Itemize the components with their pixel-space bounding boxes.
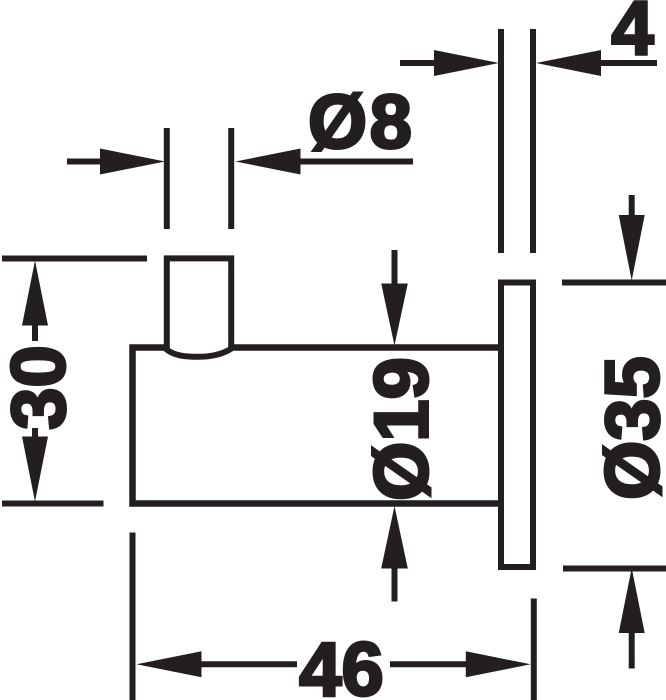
svg-text:Ø8: Ø8: [308, 80, 414, 165]
svg-text:Ø19: Ø19: [360, 357, 445, 501]
svg-text:46: 46: [299, 628, 384, 700]
svg-text:30: 30: [0, 345, 82, 430]
svg-text:Ø35: Ø35: [591, 356, 666, 500]
svg-text:4: 4: [611, 0, 653, 71]
